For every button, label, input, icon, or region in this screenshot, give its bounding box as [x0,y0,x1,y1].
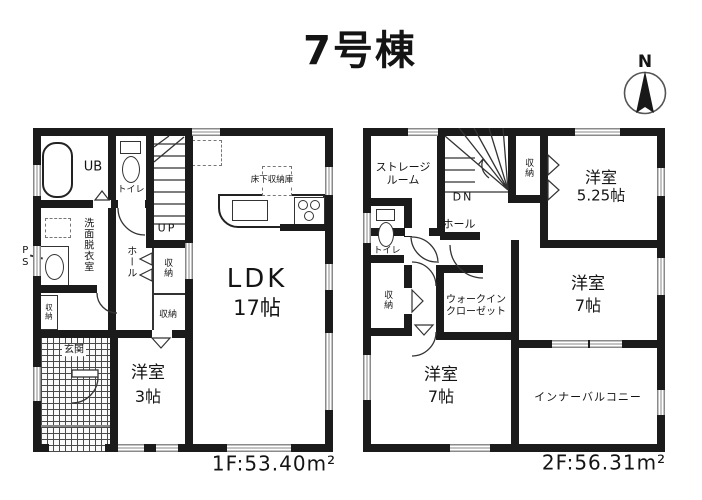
stairs-up-label: UP [158,223,177,236]
room-label-bedroom7s-size: 7帖 [428,388,454,406]
floorplan-page: 7号棟 N PS [0,0,702,500]
closet-label: 収納 [44,304,53,321]
floor2-area-label: 2F:56.31m² [542,452,666,475]
closet-label: 収納 [162,258,172,278]
room-label-wic: ウォークイン [446,294,506,306]
closet-label: 収納 [382,290,392,310]
room-label-storage: ストレージ [376,162,431,175]
room-label-bedroom3-size: 3帖 [135,388,161,406]
room-label-washroom: 洗面脱衣室 [81,218,93,273]
room-label-toilet: トイレ [117,185,144,195]
room-label-bedroom7e-size: 7帖 [575,297,601,315]
north-compass-icon [620,68,670,118]
closet-label: 収納 [159,310,177,320]
room-label-ldk: LDK [227,265,288,295]
closet-label: 収納 [523,158,533,178]
floor-plan-1f: UB トイレ UP 洗面脱衣室 ホール 収納 収納 収納 玄関 床下収納庫 LD… [33,128,333,452]
floor-plan-2f: ストレージ ルーム DN 収納 洋室 5.25帖 トイレ ホール 収納 ウォーク… [363,128,665,452]
room-label-bedroom525-size: 5.25帖 [577,187,625,204]
room-label-ldk-size: 17帖 [233,296,281,320]
stairs-up [154,136,185,224]
underfloor-storage-label: 床下収納庫 [249,176,296,186]
compass-n-label: N [638,53,652,73]
ps-label: PS [19,245,31,269]
room-label-bedroom7e: 洋室 [571,275,605,295]
room-label-storage-2: ルーム [387,175,420,188]
entry-door-leaf [72,370,98,377]
floor1-area-label: 1F:53.40m² [212,453,336,476]
stairs-down [445,128,508,192]
room-label-hall: ホール [443,219,476,232]
page-title: 7号棟 [303,28,417,74]
room-label-wic-2: クローゼット [446,306,506,318]
room-label-bedroom3: 洋室 [131,364,165,384]
room-label-ub: UB [84,161,102,176]
room-label-bedroom7s: 洋室 [424,366,458,386]
room-label-bedroom525: 洋室 [585,169,617,187]
room-label-toilet: トイレ [373,246,400,256]
room-label-genkan: 玄関 [62,344,86,356]
room-label-hall: ホール [124,246,136,279]
room-label-balcony: インナーバルコニー [534,392,642,405]
stairs-down-label: DN [453,192,474,205]
